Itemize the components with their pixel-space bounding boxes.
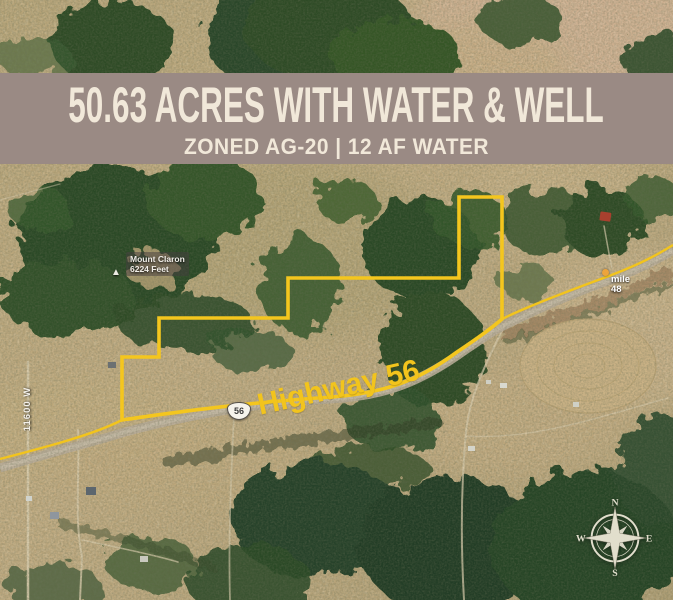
mountain-elevation: 6224 Feet: [130, 264, 185, 274]
mile-marker-label: mile 48: [611, 275, 630, 295]
compass-letter-s: S: [612, 568, 618, 579]
compass-letter-n: N: [611, 497, 618, 508]
compass-rose-icon: N E S W: [576, 499, 654, 577]
mountain-name: Mount Claron: [130, 254, 185, 264]
mountain-label: Mount Claron 6224 Feet: [126, 252, 189, 276]
route-shield-number: 56: [234, 406, 244, 416]
listing-subtitle: ZONED AG-20 | 12 AF WATER: [184, 136, 489, 158]
title-banner: 50.63 ACRES WITH WATER & WELL ZONED AG-2…: [0, 73, 673, 164]
compass-letter-e: E: [646, 533, 653, 544]
mile-marker-dot: [602, 269, 609, 276]
listing-title: 50.63 ACRES WITH WATER & WELL: [69, 80, 605, 130]
compass-letter-w: W: [576, 533, 586, 544]
street-label: 11600 W: [22, 381, 36, 437]
mountain-peak-icon: ▲: [111, 268, 121, 278]
property-listing-image: { "banner": { "title": "50.63 ACRES WITH…: [0, 0, 673, 600]
mile-marker: mile 48: [602, 269, 630, 295]
